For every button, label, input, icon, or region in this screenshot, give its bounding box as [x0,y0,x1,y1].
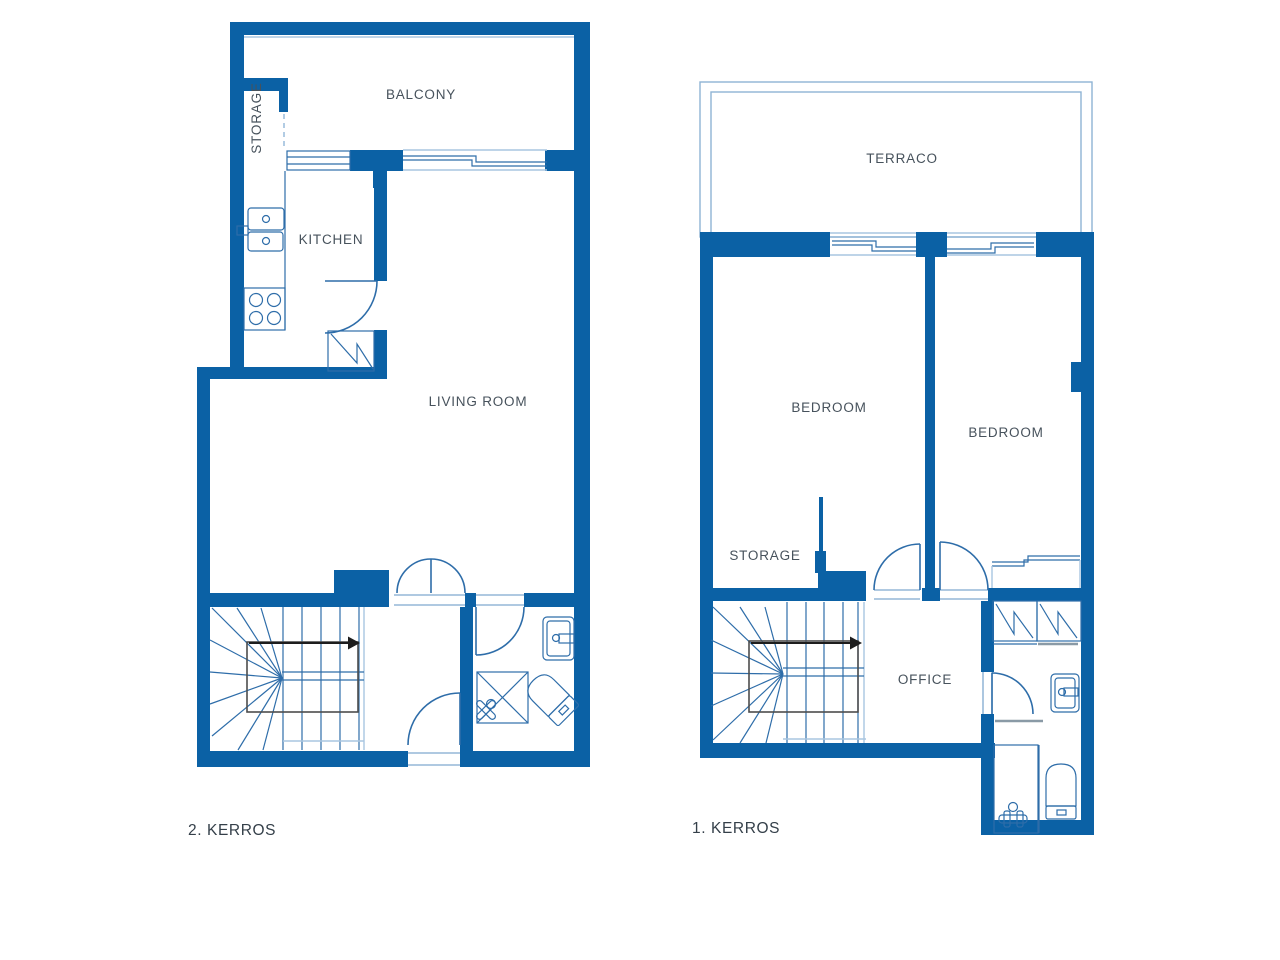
room-label-living-room: LIVING ROOM [429,394,528,409]
toilet2-icon [523,670,580,727]
room-label-storage-1f: STORAGE [729,548,800,563]
stair1-winders [711,607,783,743]
kitchen-closet-icon [328,331,374,371]
kitchen-door-arc [325,281,377,333]
room-label-bedroom-right: BEDROOM [968,425,1043,440]
toilet1-icon [1046,764,1076,819]
stair2-winders [210,608,282,750]
floor2-caption: 2. KERROS [188,822,276,839]
room-label-balcony: BALCONY [386,87,456,102]
living-room-double-door [394,559,465,607]
bedroom-right-door-arc [940,542,988,601]
room-label-bedroom-left: BEDROOM [791,400,866,415]
kitchen-sink [237,208,284,251]
room-label-storage-2f: STORAGE [249,82,264,153]
room-label-kitchen: KITCHEN [299,232,364,247]
shower2-icon [469,672,528,727]
room-label-terrace: TERRACO [866,151,938,166]
bathroom2-sink [543,617,574,660]
floor-plan-page: BALCONY STORAGE KITCHEN LIVING ROOM 2. K… [0,0,1280,960]
stairs2-direction-arrow [249,637,360,650]
bathroom1-closets [993,601,1081,644]
floor-plan-canvas: BALCONY STORAGE KITCHEN LIVING ROOM 2. K… [0,0,1280,960]
staircase-2f [210,607,364,750]
bathroom2-door-arc [476,595,524,655]
bedroom-left-door-arc [874,544,920,601]
stove-icon [244,288,285,330]
bathroom1-sink [1051,674,1079,712]
floor1-plan: TERRACO BEDROOM BEDROOM STORAGE OFFICE 1… [692,82,1094,837]
bathroom1-door-arc [981,672,1033,714]
balcony-sliding-door [403,150,547,170]
balcony-window [287,151,350,170]
shower1-icon [994,745,1039,833]
staircase-1f [711,602,866,743]
wardrobe-sliding-doors [992,556,1080,588]
room-label-office: OFFICE [898,672,952,687]
floor2-plan: BALCONY STORAGE KITCHEN LIVING ROOM 2. K… [188,22,590,839]
stair1-treads [783,602,866,743]
floor1-caption: 1. KERROS [692,820,780,837]
stair2-treads [282,607,364,750]
entry-door-arc [408,693,460,765]
